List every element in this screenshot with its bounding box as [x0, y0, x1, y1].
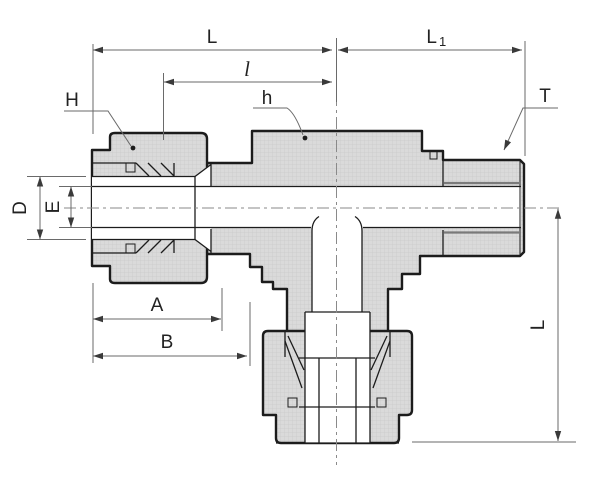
- dim-label-E: E: [43, 201, 64, 214]
- dim-E: E: [43, 187, 71, 228]
- dim-label-T: T: [539, 86, 551, 107]
- dim-B: B: [93, 332, 247, 356]
- dim-label-l: l: [244, 57, 250, 81]
- dim-label-L-vertical: L: [528, 320, 549, 331]
- dim-L1: L 1: [338, 27, 522, 50]
- dim-L-top: L: [93, 27, 332, 50]
- dim-label-B: B: [161, 332, 174, 353]
- dim-A: A: [93, 295, 221, 319]
- dim-label-L1-sub: 1: [439, 34, 446, 49]
- dim-l: l: [164, 57, 332, 82]
- tube-bottom: [305, 312, 370, 443]
- fitting-diagram: L L 1 l A B D E L: [0, 0, 603, 485]
- dim-label-H: H: [65, 90, 79, 111]
- dim-label-h: h: [262, 88, 273, 109]
- dim-label-L-top: L: [207, 27, 218, 48]
- dim-label-D: D: [10, 201, 31, 215]
- leader-T: T: [504, 86, 558, 150]
- dim-D: D: [10, 177, 40, 240]
- drawing-canvas: L L 1 l A B D E L: [0, 0, 603, 485]
- dim-label-L1: L: [426, 27, 437, 48]
- dim-L-vertical: L: [528, 209, 558, 441]
- dim-label-A: A: [151, 295, 164, 316]
